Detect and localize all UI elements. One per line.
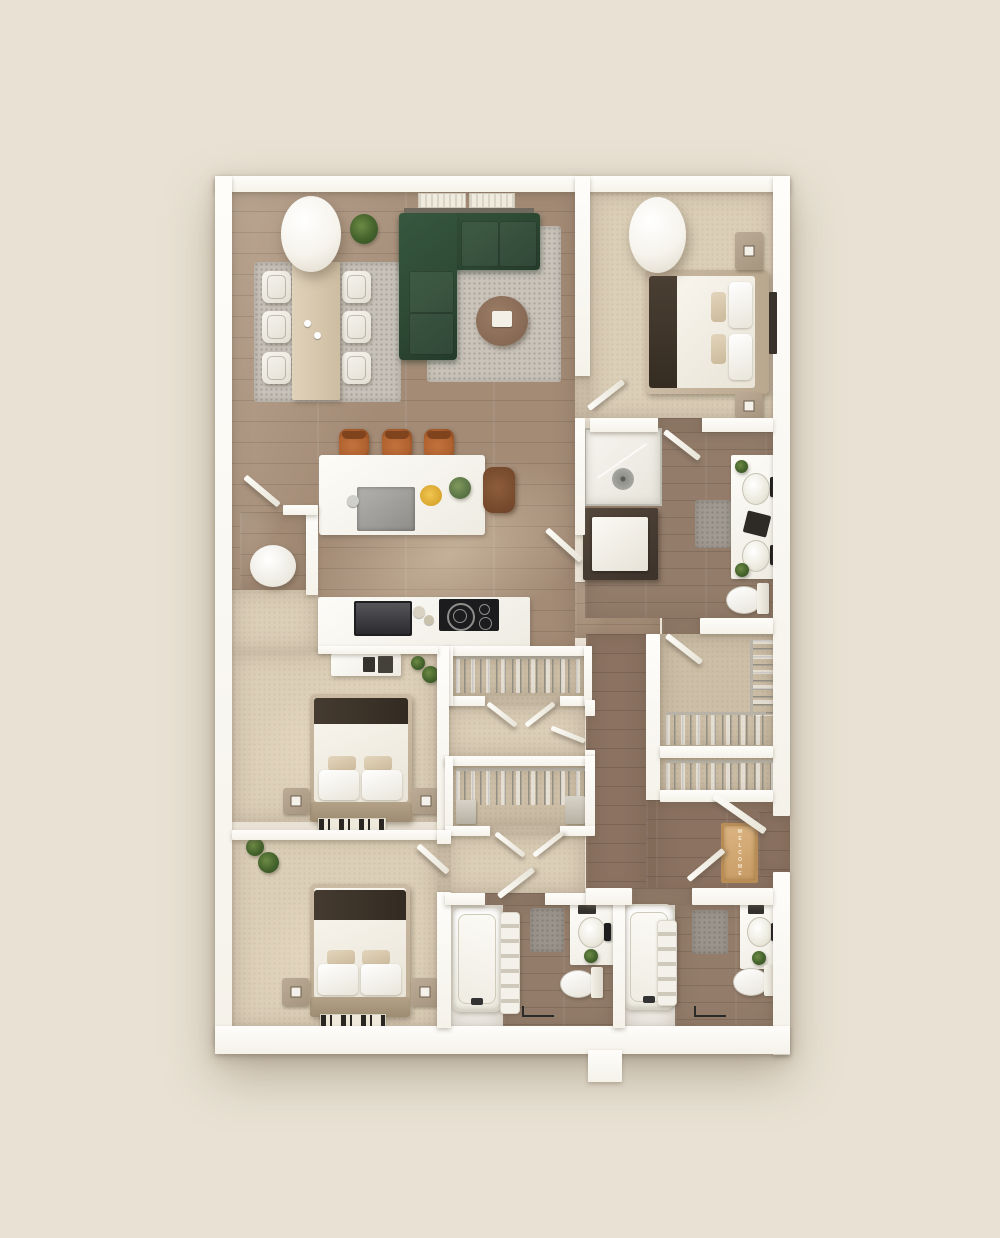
dining-chair <box>262 271 291 303</box>
vanity-sink <box>578 917 606 948</box>
vanity-plant <box>735 460 748 473</box>
wall-closet-b-north <box>445 756 595 766</box>
bath2-vanity <box>570 903 615 965</box>
closet-hanging-rod <box>666 760 776 792</box>
wall-outer-top <box>215 176 790 192</box>
vanity-plant <box>584 949 598 963</box>
toilet-tank <box>591 967 603 998</box>
wall-outer-right-upper <box>773 176 790 816</box>
bedroom2-dresser <box>331 654 401 676</box>
cooktop <box>439 599 499 631</box>
potted-plant <box>258 852 279 873</box>
bed-blanket <box>649 276 677 388</box>
vanity-plant <box>752 951 766 965</box>
shower-drain <box>612 468 634 490</box>
vanity-tray <box>748 905 764 914</box>
hallway-floor <box>586 634 646 900</box>
closet-hanging-rod <box>456 656 583 693</box>
washer-dryer <box>592 517 648 571</box>
wall-niche-east <box>306 505 318 595</box>
window-sill-shadow <box>404 208 534 213</box>
bathroom3-door-opening <box>632 888 692 905</box>
wall-living-ensuite <box>575 418 585 535</box>
tub-faucet <box>643 996 655 1003</box>
bedroom2-bed <box>310 694 412 822</box>
wall-bath2-bath3 <box>613 893 625 1028</box>
bed-blanket <box>314 698 408 724</box>
kitchen-counter <box>318 597 530 652</box>
walk-in-shower <box>584 428 662 506</box>
wall-oven <box>354 601 412 636</box>
bathroom2-door-opening <box>485 893 545 905</box>
welcome-mat-text: WELCOME <box>737 829 742 878</box>
pendant-column-living <box>281 196 341 272</box>
floor-plan-canvas: { "scene": { "type": "3d-top-down-apartm… <box>0 0 1000 1238</box>
closet-hanging-rod <box>666 712 766 745</box>
welcome-mat: WELCOME <box>721 823 758 883</box>
bedroom3-bed <box>310 884 410 1017</box>
potted-plant <box>411 656 425 670</box>
wall-bedroom2-bedroom3 <box>232 830 437 840</box>
vanity-plant <box>735 563 749 577</box>
wall-bottom-protrusion <box>588 1050 622 1082</box>
wall-bedroom3-east-stub <box>437 830 451 844</box>
wall-bedroom3-east <box>437 892 451 1028</box>
wall-closet-a-east <box>584 646 592 706</box>
window <box>469 193 515 208</box>
floor-plant <box>350 214 378 244</box>
wall-niche-top <box>283 505 318 515</box>
wall-bedroom1-bath-right <box>702 418 773 432</box>
sectional-sofa-left <box>399 213 457 360</box>
island-plant <box>449 477 471 499</box>
kitchen-island <box>319 455 485 535</box>
wall-hall-closets <box>646 634 660 800</box>
island-sink <box>357 487 415 531</box>
bedroom1-bed <box>645 270 769 394</box>
towel-bar <box>522 1006 554 1017</box>
toilet-tank <box>757 583 769 614</box>
dining-chair <box>262 311 291 343</box>
wall-closet-b-south-right <box>560 826 595 836</box>
walk-in-door-opening <box>662 618 704 634</box>
round-coffee-table <box>476 296 528 346</box>
towel-bar <box>694 1006 726 1017</box>
desk-chair <box>483 467 515 513</box>
wall-bath-closet <box>700 618 773 634</box>
wall-walkin-reachin <box>660 746 773 758</box>
wall-outer-bottom <box>215 1026 790 1054</box>
bath-mat <box>530 908 564 952</box>
laundry-closet <box>583 508 658 580</box>
wall-closet-b-east <box>585 756 595 834</box>
dining-table <box>292 262 340 400</box>
nightstand <box>735 393 763 418</box>
towel-ladder <box>657 920 677 1006</box>
wall-closet-b-south-left <box>445 826 490 836</box>
tub-faucet <box>471 998 483 1005</box>
wall-bedroom1-bath-left <box>590 418 658 432</box>
pendant-column-bedroom1 <box>629 197 686 273</box>
bath-mat <box>695 500 731 548</box>
nightstand <box>282 978 309 1006</box>
fruit-bowl <box>420 485 442 506</box>
bed-blanket <box>314 890 406 920</box>
wall-bath2-north-left <box>445 893 485 905</box>
counter-jar <box>424 615 434 625</box>
vanity-tray <box>743 510 772 537</box>
wall-entry-bath3 <box>692 888 773 905</box>
bedroom2-entry-carpet <box>232 590 318 652</box>
bath-mat <box>692 910 728 954</box>
dining-chair <box>342 311 371 343</box>
window <box>418 193 466 208</box>
vanity-faucet <box>604 923 611 941</box>
wall-outer-left <box>215 176 232 1045</box>
decor-vase <box>250 545 296 587</box>
wall-art <box>769 292 777 354</box>
wall-living-bedroom1 <box>575 176 590 376</box>
front-door-threshold <box>758 812 790 874</box>
counter-jar <box>413 606 425 618</box>
closet-shelf-stack <box>565 796 585 824</box>
nightstand <box>411 978 438 1006</box>
wall-kitchen-bedroom2 <box>318 646 438 654</box>
vanity-sink <box>742 473 770 505</box>
dining-chair <box>262 352 291 384</box>
bathtub <box>451 906 503 1012</box>
bedroom1-door-opening <box>575 376 590 418</box>
dining-chair <box>342 271 371 303</box>
vanity-sink <box>747 917 773 947</box>
wall-closet-a-north <box>445 646 592 656</box>
nightstand <box>412 788 439 814</box>
closet-shelf-stack <box>456 800 476 824</box>
wall-hall-south <box>586 888 632 905</box>
wall-closet-b-west <box>445 756 453 834</box>
towel-ladder <box>500 912 520 1014</box>
vanity-tray <box>578 905 596 914</box>
wall-dressing-east-stub <box>585 700 595 716</box>
island-faucet <box>347 495 359 507</box>
nightstand <box>283 788 309 814</box>
nightstand <box>735 232 763 270</box>
dining-chair <box>342 352 371 384</box>
